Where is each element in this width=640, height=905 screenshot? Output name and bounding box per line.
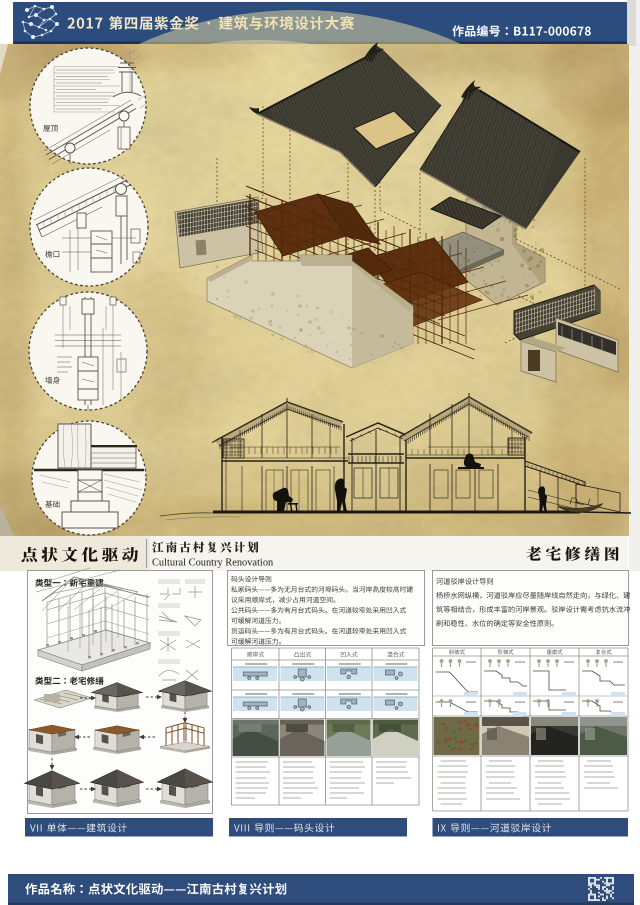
svg-text:Cultural Country Renovation: Cultural Country Renovation bbox=[152, 558, 274, 569]
